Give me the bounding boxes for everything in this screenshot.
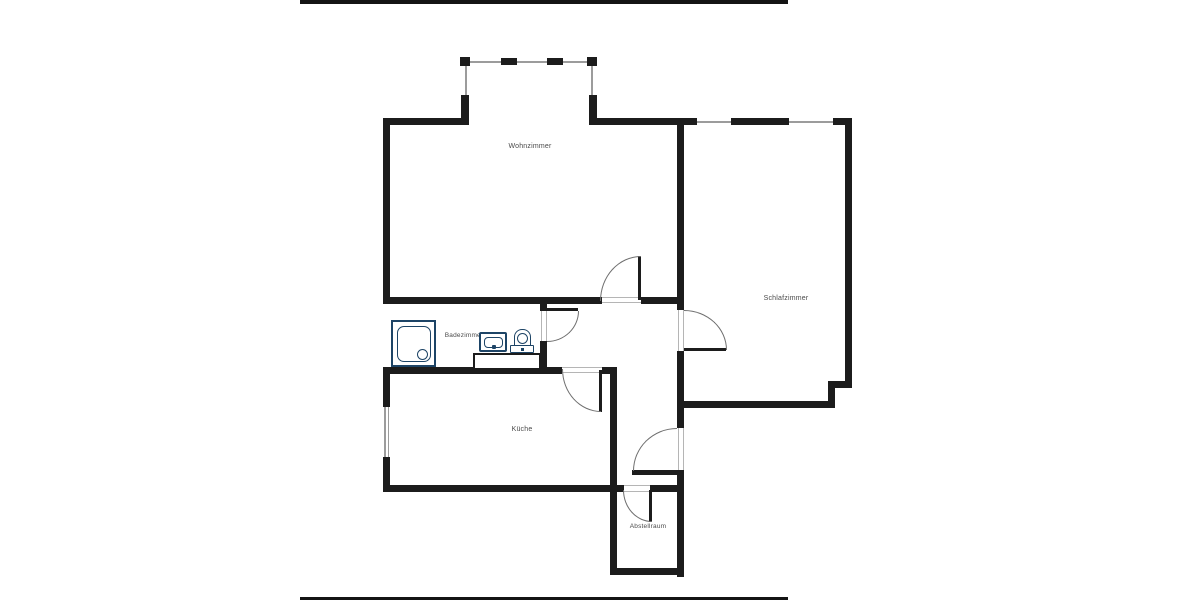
- door-arc: [547, 311, 579, 342]
- wall-kitchen-east: [610, 367, 617, 575]
- floor-plan-page: Wohnzimmer Schlafzimmer Badezimmer Küche…: [0, 0, 1200, 600]
- room-label-kueche: Küche: [512, 426, 533, 434]
- door-arc: [623, 490, 652, 522]
- toilet-bowl: [517, 333, 528, 344]
- wall-livingroom-bottom-left: [383, 297, 602, 304]
- wall-top-right: [589, 118, 684, 125]
- threshold: [678, 428, 679, 470]
- shower-drain: [417, 349, 428, 360]
- door-arc: [684, 310, 727, 350]
- balcony-rail-line: [465, 61, 593, 63]
- wall-storage-top-right: [650, 485, 684, 492]
- threshold: [624, 485, 650, 486]
- kitchen-window-line: [384, 407, 386, 457]
- room-label-schlafzimmer: Schlafzimmer: [764, 295, 809, 303]
- sink-tap: [492, 345, 496, 349]
- door-arc: [633, 428, 677, 471]
- threshold: [562, 367, 602, 368]
- wall-kitchen-bottom: [383, 485, 624, 492]
- threshold: [541, 311, 542, 341]
- wall-west: [383, 118, 390, 304]
- threshold: [678, 310, 679, 351]
- room-label-wohnzimmer: Wohnzimmer: [508, 143, 551, 151]
- balcony-post-icon: [460, 57, 470, 66]
- wall-bedroom-top-stub: [684, 118, 697, 125]
- room-label-abstellraum: Abstellraum: [630, 523, 667, 531]
- wall-top-left: [383, 118, 468, 125]
- wall-bedroom-east: [845, 118, 852, 388]
- window-dash-icon: [547, 58, 563, 65]
- balcony-rail-left: [465, 63, 467, 97]
- balcony-rail-right: [591, 63, 593, 97]
- wall-storage-bottom: [610, 568, 684, 575]
- balcony-post-icon: [587, 57, 597, 66]
- wall-kitchen-west-upper: [383, 367, 390, 407]
- top-letterbox-bar: [300, 0, 788, 4]
- door-arc: [562, 369, 601, 412]
- wall-bath-east-stub: [540, 303, 547, 311]
- threshold: [602, 302, 641, 303]
- wall-living-bedroom-divider: [677, 118, 684, 310]
- kitchen-window-line-inner: [388, 407, 389, 457]
- wall-bedroom-west-lower: [677, 351, 684, 428]
- door-arc: [600, 256, 641, 301]
- room-label-badezimmer: Badezimmer: [445, 332, 483, 340]
- wall-bedroom-bottom: [677, 401, 835, 408]
- threshold: [683, 428, 684, 470]
- bedroom-window-dash-icon: [731, 118, 789, 125]
- window-dash-icon: [501, 58, 517, 65]
- vanity-counter: [473, 353, 541, 370]
- toilet-button: [521, 348, 524, 351]
